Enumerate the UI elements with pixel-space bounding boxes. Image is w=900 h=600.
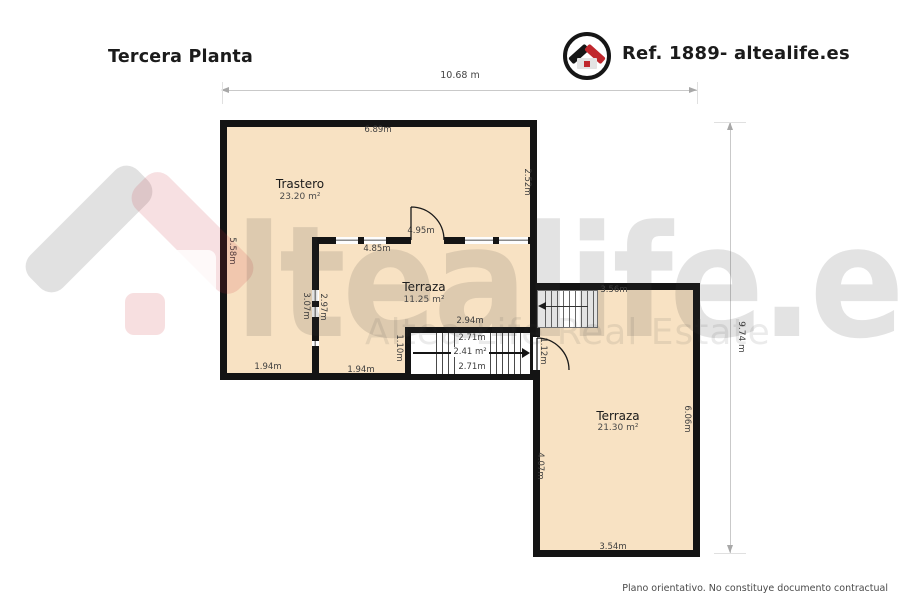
stair-arrow-icon (522, 348, 530, 358)
room-area-terraza-mid: 11.25 m² (364, 295, 484, 305)
dim-label: 3.54m (583, 541, 643, 553)
dim-line-top (222, 90, 697, 91)
dim-label: 6.89m (348, 124, 408, 136)
dim-label: 6.06m (681, 389, 693, 449)
house-door-icon (584, 61, 590, 67)
stair-step (569, 291, 570, 327)
dim-label: 2.97m (317, 277, 329, 337)
room-name-terraza-mid: Terraza (364, 280, 484, 294)
dim-label: 1.94m (331, 364, 391, 376)
room-name-terraza-right: Terraza (558, 409, 678, 423)
dim-label: 2.71m (442, 332, 502, 344)
room-area-trastero: 23.20 m² (240, 192, 360, 202)
dim-label: 2.94m (440, 315, 500, 327)
dim-label: 2.52m (521, 152, 533, 212)
stair-step (563, 291, 564, 327)
dim-overall-width: 10.68 m (410, 70, 510, 81)
dim-overall-height: 9.74 m (735, 307, 747, 367)
watermark-roof-left (19, 159, 159, 299)
arrow-up-icon (727, 122, 733, 130)
dim-label: 4.95m (391, 225, 451, 237)
dim-label: 4.07m (534, 436, 546, 496)
brand-house-icon (563, 32, 611, 80)
watermark-house-body (118, 250, 216, 365)
room-area-terraza-right: 21.30 m² (558, 423, 678, 433)
dim-label: 1.94m (238, 361, 298, 373)
stair-arrow-icon (538, 302, 546, 310)
arrow-down-icon (727, 545, 733, 553)
disclaimer-text: Plano orientativo. No constituye documen… (622, 583, 888, 594)
floorplan-page: Tercera Planta Ref. 1889- altealife.es 1… (0, 0, 900, 600)
dim-label: 1.10m (393, 318, 405, 378)
dim-label-text: 2.41 m² (451, 347, 488, 357)
dim-label: 5.58m (226, 221, 238, 281)
watermark-house-door (125, 293, 165, 335)
room-name-trastero: Trastero (240, 177, 360, 191)
stair-step (593, 291, 594, 327)
stair-direction-line (546, 306, 588, 307)
dim-tick (714, 122, 746, 123)
dim-label: 2.71m (442, 361, 502, 373)
dim-label: 2.41 m² (440, 346, 500, 358)
dim-label: 3.07m (300, 276, 312, 336)
window (497, 237, 530, 244)
dim-label: 4.85m (347, 243, 407, 255)
stair-step (557, 291, 558, 327)
door-opening (411, 237, 444, 244)
dim-line-right (730, 123, 731, 553)
stair-step (575, 291, 576, 327)
reference-label: Ref. 1889- altealife.es (622, 43, 850, 64)
page-title: Tercera Planta (108, 47, 253, 67)
dim-label: 3.56m (584, 284, 644, 296)
dim-tick (222, 82, 223, 104)
dim-tick (714, 553, 746, 554)
stair-step (551, 291, 552, 327)
window (463, 237, 495, 244)
window (312, 339, 319, 348)
stair-step (581, 291, 582, 327)
arrow-right-icon (689, 87, 697, 93)
stair-step (587, 291, 588, 327)
dim-tick (697, 82, 698, 104)
dim-label: 1.12m (537, 321, 549, 381)
